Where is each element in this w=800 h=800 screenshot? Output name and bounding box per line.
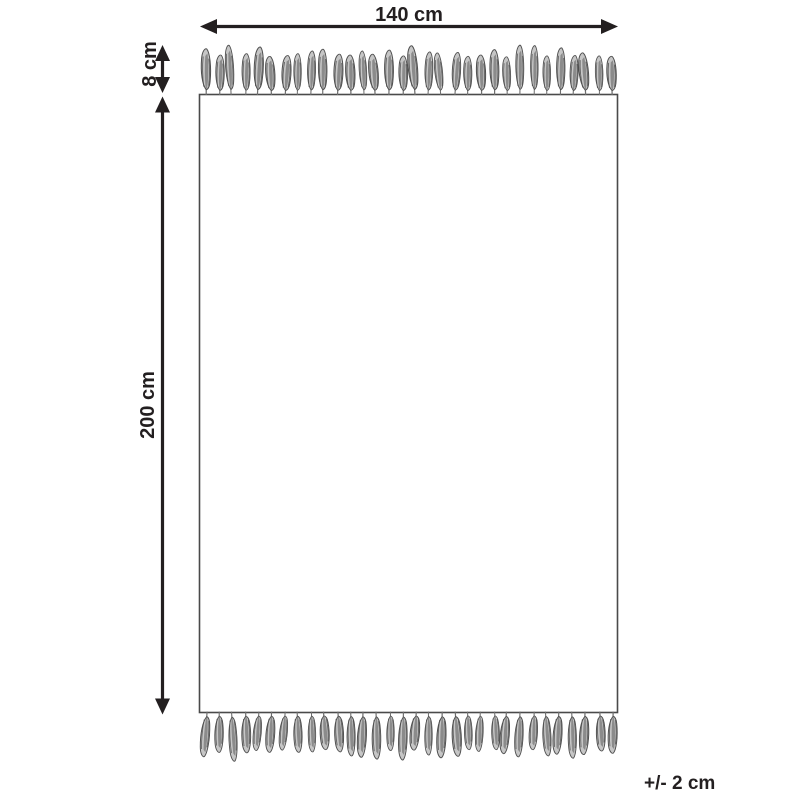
tassel bbox=[241, 54, 250, 96]
tassel bbox=[241, 711, 252, 753]
tassel bbox=[307, 711, 316, 752]
tassel bbox=[579, 711, 589, 754]
tassel bbox=[607, 56, 617, 95]
tassel bbox=[306, 51, 316, 95]
top-fringe bbox=[201, 45, 616, 95]
length-dimension-label: 200 cm bbox=[138, 371, 158, 439]
tassel bbox=[578, 53, 590, 96]
tassel bbox=[345, 55, 355, 95]
diagram-graphics bbox=[0, 0, 800, 800]
tassel bbox=[476, 55, 486, 95]
tassel bbox=[384, 50, 394, 95]
rug-outline bbox=[200, 95, 618, 713]
tassel bbox=[552, 711, 562, 754]
tassel bbox=[265, 56, 276, 95]
tassel bbox=[595, 711, 606, 751]
tassel bbox=[490, 711, 500, 750]
tassel bbox=[293, 711, 303, 752]
tassel bbox=[199, 711, 211, 757]
tassel bbox=[567, 711, 577, 758]
tassel bbox=[556, 48, 566, 95]
tassel bbox=[436, 711, 446, 757]
width-dimension-label: 140 cm bbox=[200, 5, 618, 25]
tassel bbox=[368, 54, 380, 95]
tassel bbox=[386, 711, 394, 750]
tassel bbox=[433, 53, 444, 96]
tolerance-label: +/- 2 cm bbox=[644, 774, 715, 793]
tassel bbox=[529, 711, 538, 749]
tassel bbox=[252, 711, 262, 751]
tassel bbox=[278, 711, 288, 750]
bottom-fringe bbox=[199, 711, 617, 761]
tassel bbox=[595, 56, 603, 95]
tassel bbox=[490, 50, 499, 95]
tassel bbox=[359, 51, 368, 95]
tassel bbox=[227, 711, 238, 761]
tassel bbox=[543, 56, 551, 95]
tassel bbox=[333, 54, 344, 95]
tassel bbox=[333, 711, 345, 752]
tassel bbox=[514, 711, 524, 757]
tassel bbox=[371, 711, 381, 759]
tassel bbox=[475, 711, 484, 751]
tassel bbox=[215, 711, 224, 752]
tassel bbox=[407, 45, 420, 95]
tassel bbox=[608, 711, 617, 753]
tassel bbox=[450, 52, 462, 95]
tassel bbox=[265, 711, 275, 752]
tassel bbox=[516, 45, 524, 95]
tassel bbox=[541, 711, 552, 756]
tassel bbox=[280, 55, 292, 95]
tassel bbox=[215, 55, 225, 95]
tassel bbox=[463, 711, 473, 750]
tassel bbox=[357, 711, 367, 757]
rug-dimension-diagram: 140 cm 8 cm 200 cm +/- 2 cm bbox=[0, 0, 800, 800]
tassel bbox=[346, 711, 355, 756]
tassel bbox=[293, 54, 301, 96]
tassel bbox=[318, 49, 327, 95]
tassel bbox=[252, 47, 264, 96]
tassel bbox=[463, 56, 472, 95]
tassel bbox=[398, 56, 407, 95]
tassel bbox=[530, 46, 538, 95]
tassel bbox=[409, 711, 420, 750]
tassel bbox=[424, 711, 432, 755]
tassel bbox=[398, 711, 407, 760]
tassel bbox=[569, 55, 579, 95]
tassel bbox=[319, 711, 331, 750]
fringe-dimension-label: 8 cm bbox=[140, 41, 160, 87]
tassel bbox=[499, 711, 510, 754]
tassel bbox=[424, 52, 434, 95]
tassel bbox=[450, 711, 463, 756]
tassel bbox=[502, 57, 510, 95]
tassel bbox=[201, 49, 210, 95]
tassel bbox=[225, 45, 235, 95]
